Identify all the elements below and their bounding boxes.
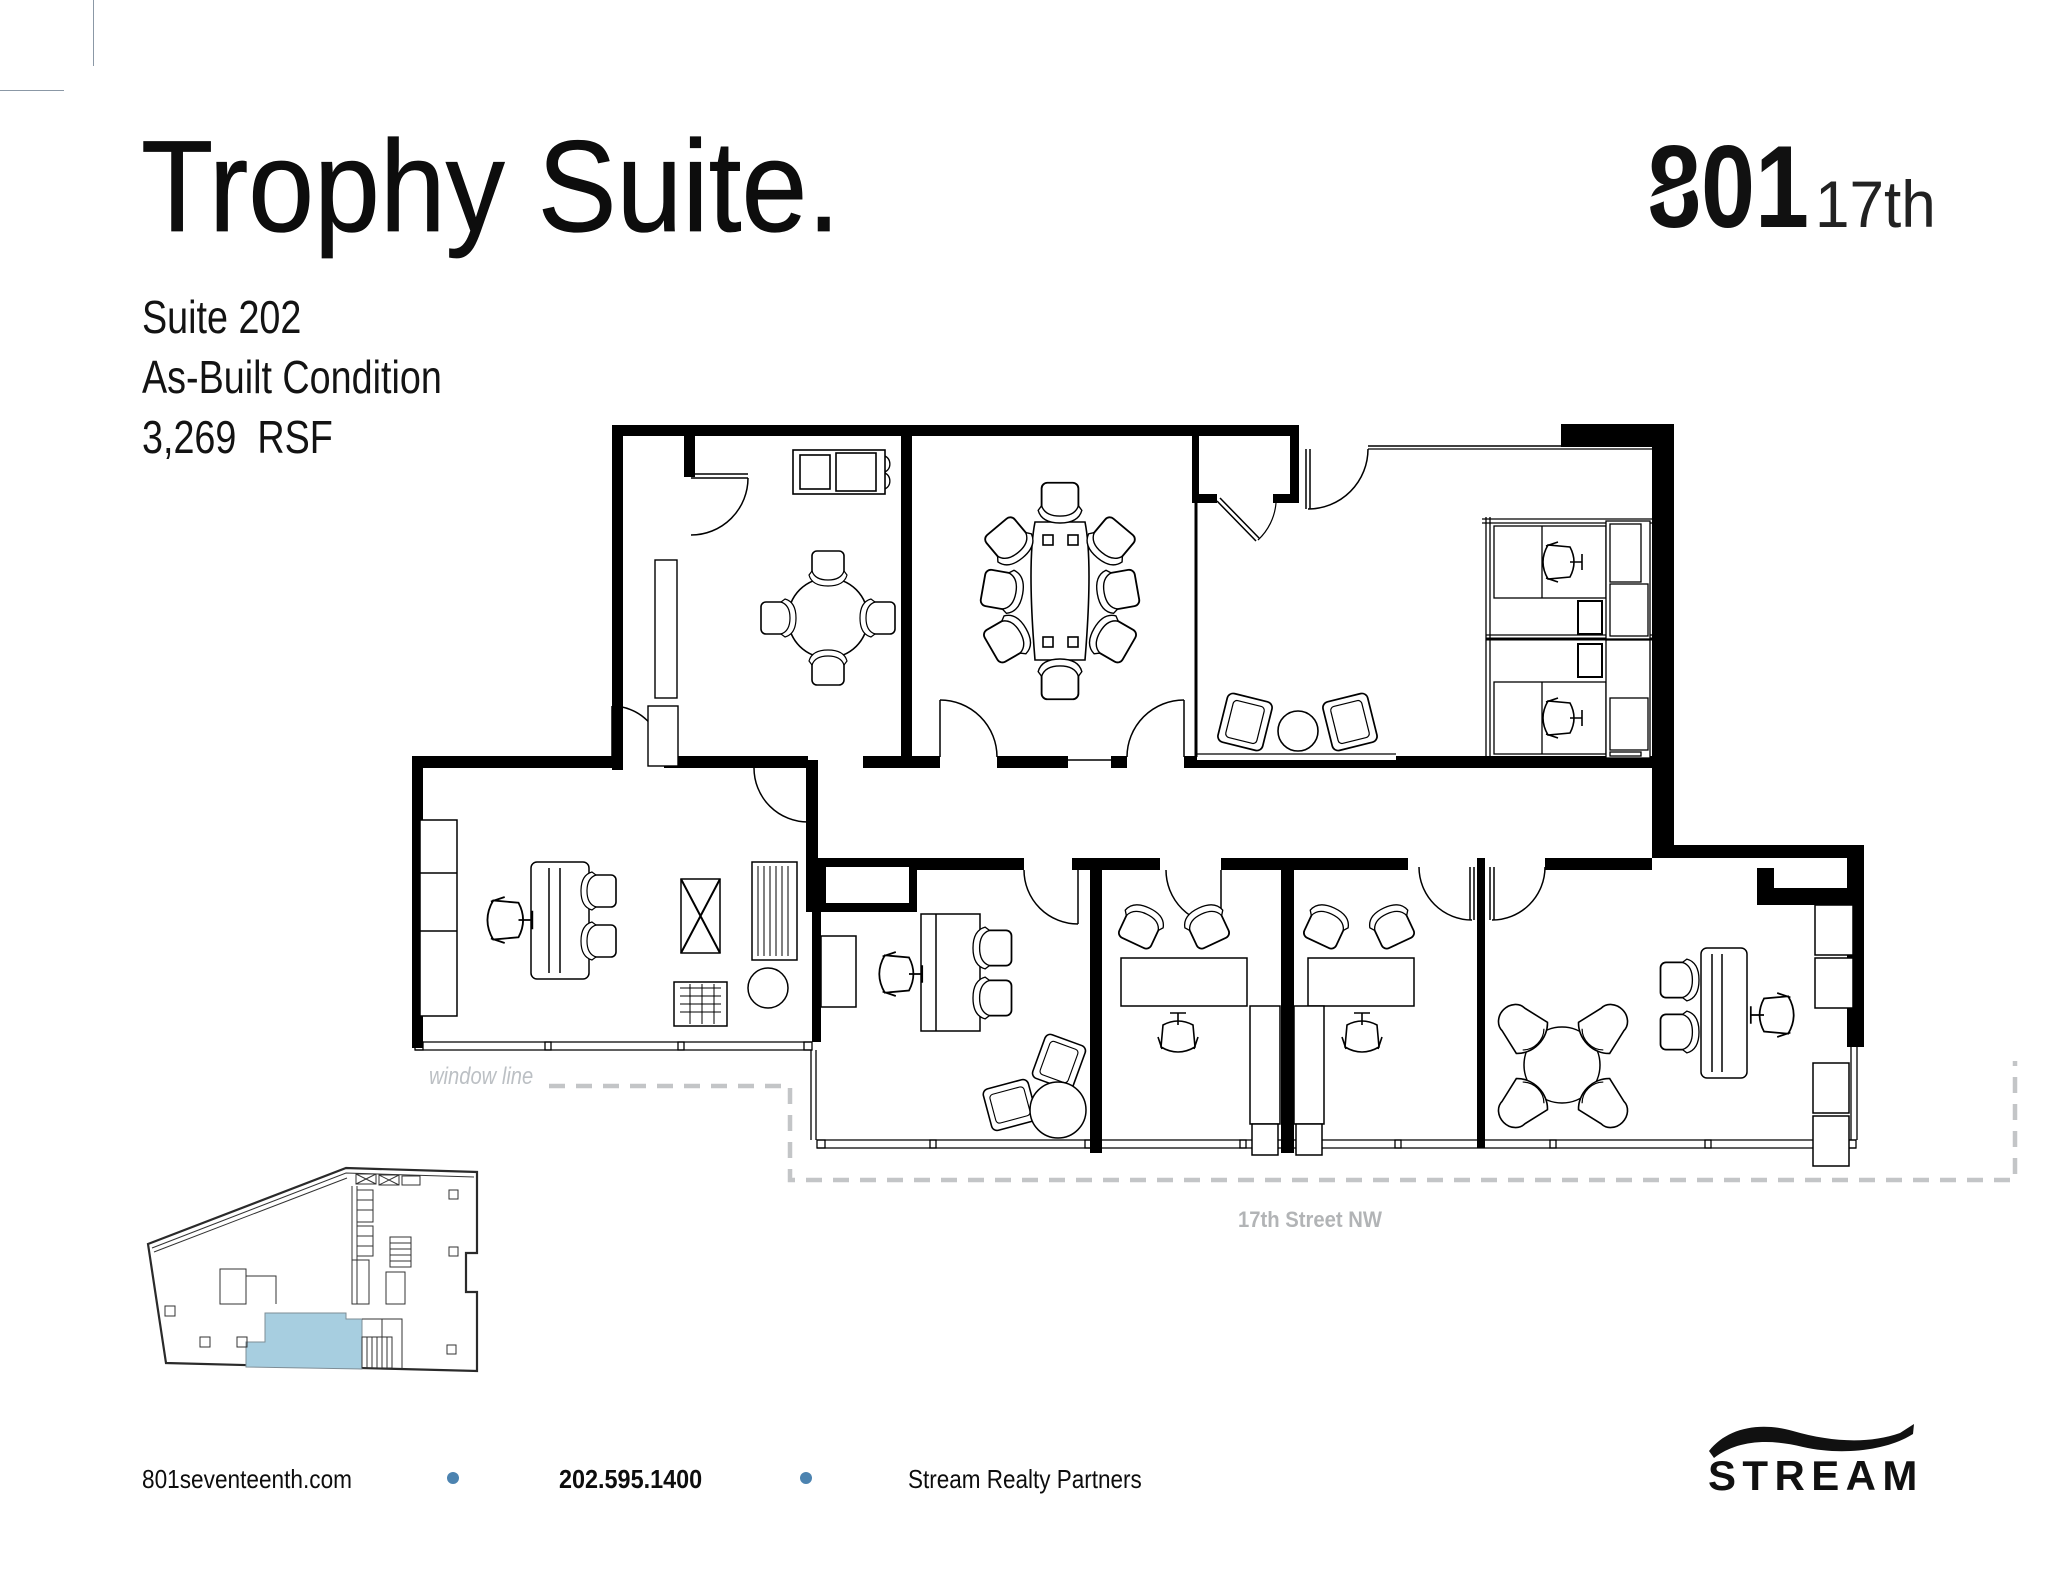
svg-text:STREAM: STREAM [1708, 1452, 1924, 1499]
